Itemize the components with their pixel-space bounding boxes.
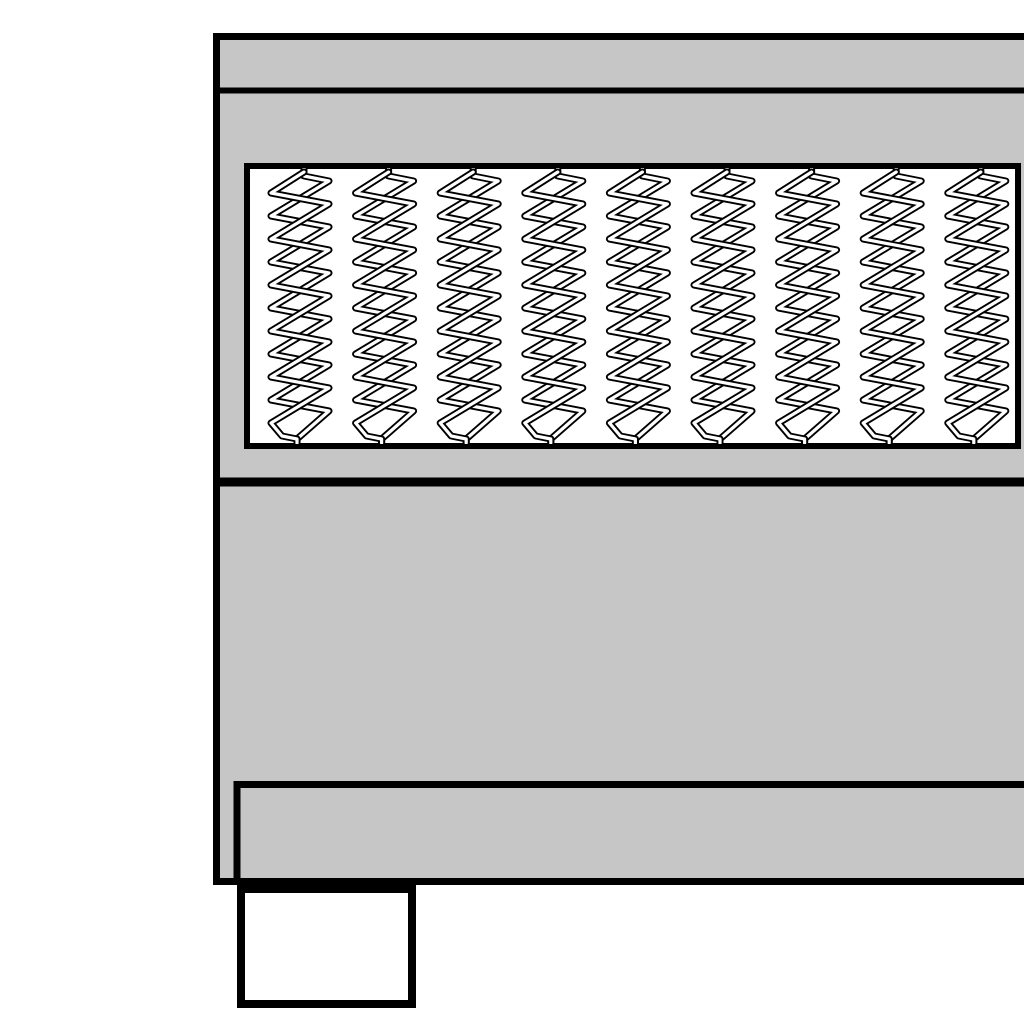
illustration-stage — [0, 0, 1024, 1024]
leg-rect — [241, 889, 412, 1004]
bed-leg — [241, 889, 412, 1004]
boxspring-bed-illustration — [0, 0, 1024, 1024]
